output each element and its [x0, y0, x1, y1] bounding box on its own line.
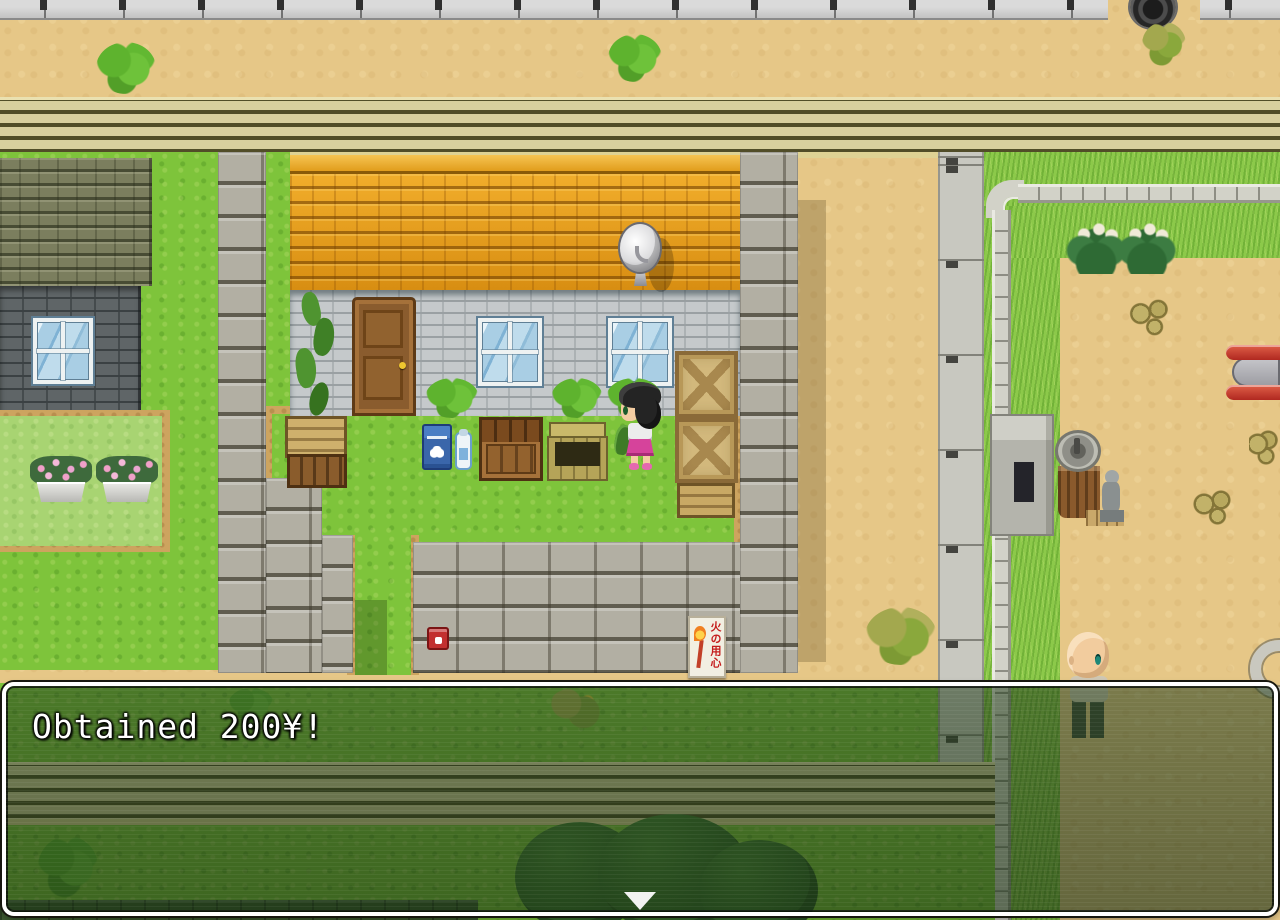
pebbles	[1249, 428, 1280, 468]
farmhouse-door	[352, 297, 416, 416]
fire-extinguisher-box	[427, 627, 449, 650]
wall-bush	[551, 378, 603, 418]
fire-caution-sign: 火の用心	[688, 616, 726, 678]
grass-tuft	[1142, 22, 1186, 66]
white-plume-plant	[1118, 222, 1176, 274]
wall-bush	[425, 378, 479, 418]
message-text: Obtained 200¥!	[32, 708, 324, 746]
open-crate	[479, 417, 543, 481]
stone-statue	[1100, 470, 1124, 522]
grass-tuft	[608, 34, 662, 82]
white-plume-plant	[1066, 222, 1126, 274]
farmhouse-window	[608, 318, 672, 386]
path-shadow	[355, 600, 387, 675]
transformer-box	[990, 414, 1054, 536]
yard-grass-strip	[266, 152, 290, 408]
farmhouse-roof-ridge	[290, 155, 740, 174]
flower-planter	[96, 452, 158, 502]
fire-sign-text: 火の用心	[709, 621, 721, 669]
playground-slide	[1226, 345, 1280, 413]
pebbles	[1126, 296, 1178, 340]
water-jug	[455, 432, 472, 470]
left-house-roof	[0, 158, 152, 286]
flower-planter	[30, 452, 92, 502]
sidewalk-top	[0, 0, 1280, 20]
grass-tuft	[96, 42, 156, 94]
wall-vine	[288, 292, 346, 416]
stone-wall-right-column	[740, 152, 798, 673]
satellite-dish-icon	[618, 222, 664, 292]
female-villager	[618, 383, 662, 471]
stone-wall-block	[322, 535, 353, 673]
wooden-crate	[677, 483, 735, 518]
blue-delivery-box	[422, 424, 452, 470]
grass-tuft	[865, 607, 937, 665]
kerb-horizontal	[1018, 184, 1280, 203]
stone-wall-block	[266, 478, 322, 673]
dirt-road-north	[0, 97, 1280, 158]
game-viewport[interactable]: 火の用心	[0, 0, 1280, 920]
stone-wall-left-column	[218, 152, 266, 673]
message-window[interactable]: Obtained 200¥!	[2, 682, 1278, 916]
wooden-crate	[285, 416, 347, 458]
wooden-crate-dark	[287, 454, 347, 488]
crossed-crate	[675, 351, 738, 418]
storage-bin	[547, 422, 608, 481]
left-house-window	[33, 318, 93, 384]
pebbles	[1190, 488, 1240, 528]
wall-shadow	[798, 200, 826, 662]
farmhouse-window	[478, 318, 542, 386]
crossed-crate	[675, 418, 738, 483]
